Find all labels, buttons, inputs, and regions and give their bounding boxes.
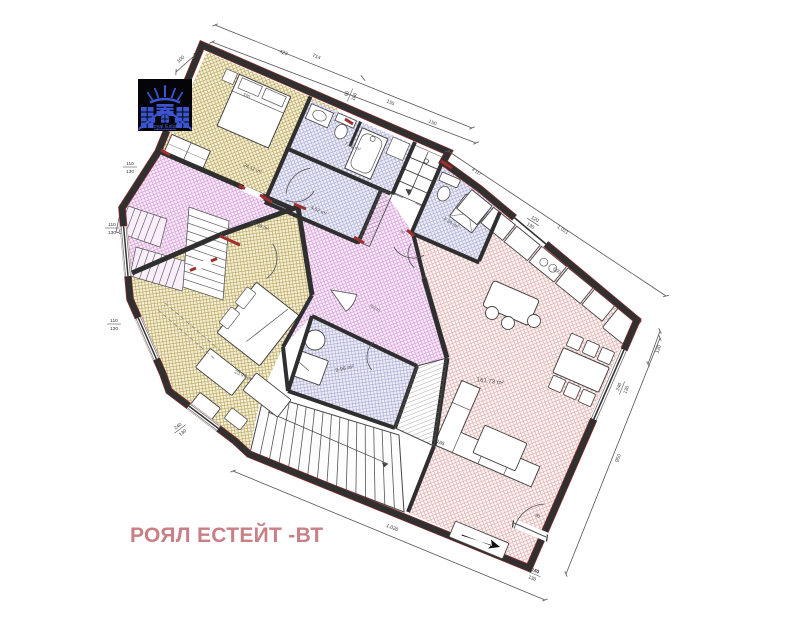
svg-text:130: 130 — [108, 230, 116, 236]
svg-text:110: 110 — [110, 318, 118, 324]
svg-text:110: 110 — [126, 161, 134, 167]
svg-text:130: 130 — [110, 326, 118, 332]
svg-text:110: 110 — [108, 222, 116, 228]
svg-text:130: 130 — [126, 169, 134, 175]
svg-text:РОЯЛ ЕСТЕЙТ -ВТ: РОЯЛ ЕСТЕЙТ -ВТ — [130, 523, 323, 547]
